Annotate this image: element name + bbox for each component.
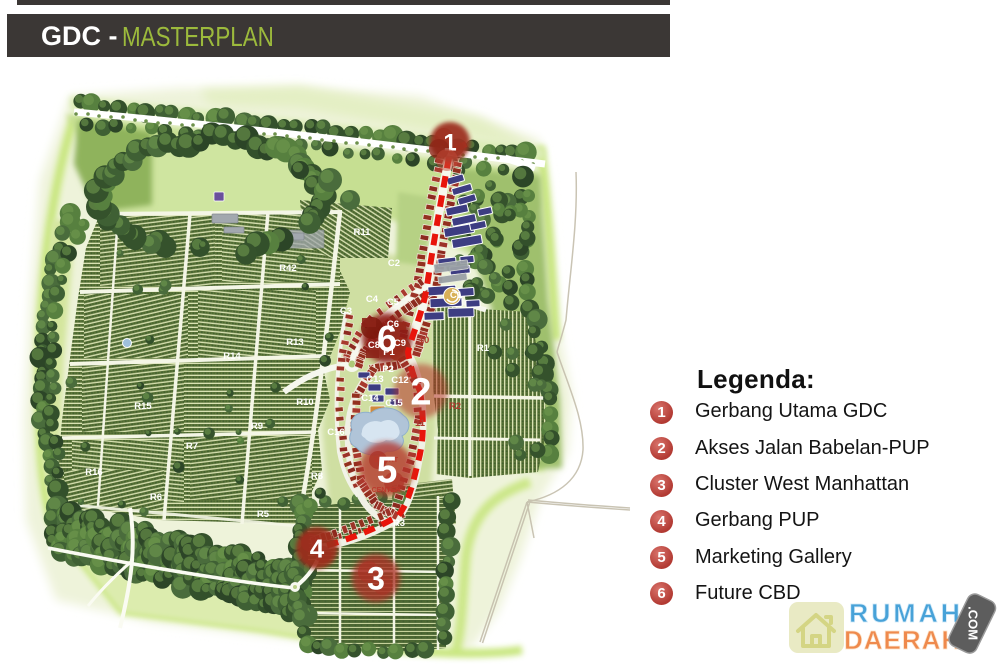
svg-text:C12: C12 xyxy=(391,375,408,386)
svg-text:R16: R16 xyxy=(85,467,102,478)
svg-text:C1: C1 xyxy=(450,290,463,301)
svg-text:R3: R3 xyxy=(393,518,405,529)
svg-text:R6: R6 xyxy=(150,492,162,503)
svg-text:R5: R5 xyxy=(257,509,270,520)
svg-text:R1: R1 xyxy=(477,343,490,354)
svg-text:P2: P2 xyxy=(382,364,394,375)
svg-text:R10: R10 xyxy=(296,397,313,408)
svg-text:4: 4 xyxy=(310,533,325,563)
svg-text:C16: C16 xyxy=(327,427,344,438)
svg-text:R42: R42 xyxy=(279,263,296,274)
svg-text:C4: C4 xyxy=(366,294,379,305)
svg-text:5: 5 xyxy=(377,449,398,490)
svg-text:R13: R13 xyxy=(286,337,303,348)
svg-text:R9: R9 xyxy=(251,421,263,432)
svg-text:C15: C15 xyxy=(385,398,403,409)
svg-text:2: 2 xyxy=(410,372,431,414)
svg-text:R2: R2 xyxy=(449,401,461,412)
svg-text:R8: R8 xyxy=(311,471,323,482)
svg-text:R11: R11 xyxy=(354,227,372,238)
svg-text:10: 10 xyxy=(419,335,430,346)
svg-text:C6: C6 xyxy=(387,319,399,330)
svg-text:C2: C2 xyxy=(388,258,400,269)
svg-text:C3: C3 xyxy=(340,306,352,317)
svg-text:C13: C13 xyxy=(366,374,383,385)
svg-text:C9: C9 xyxy=(394,338,406,349)
svg-text:C14: C14 xyxy=(361,393,379,404)
svg-text:R15: R15 xyxy=(134,401,152,412)
svg-text:R14: R14 xyxy=(223,351,241,362)
svg-text:.COM: .COM xyxy=(965,606,980,640)
svg-text:3: 3 xyxy=(367,561,385,597)
svg-text:C5: C5 xyxy=(387,297,400,308)
svg-text:11: 11 xyxy=(415,418,426,429)
svg-text:C8: C8 xyxy=(368,340,380,351)
svg-text:P1: P1 xyxy=(383,347,395,358)
svg-text:R7: R7 xyxy=(186,441,198,452)
